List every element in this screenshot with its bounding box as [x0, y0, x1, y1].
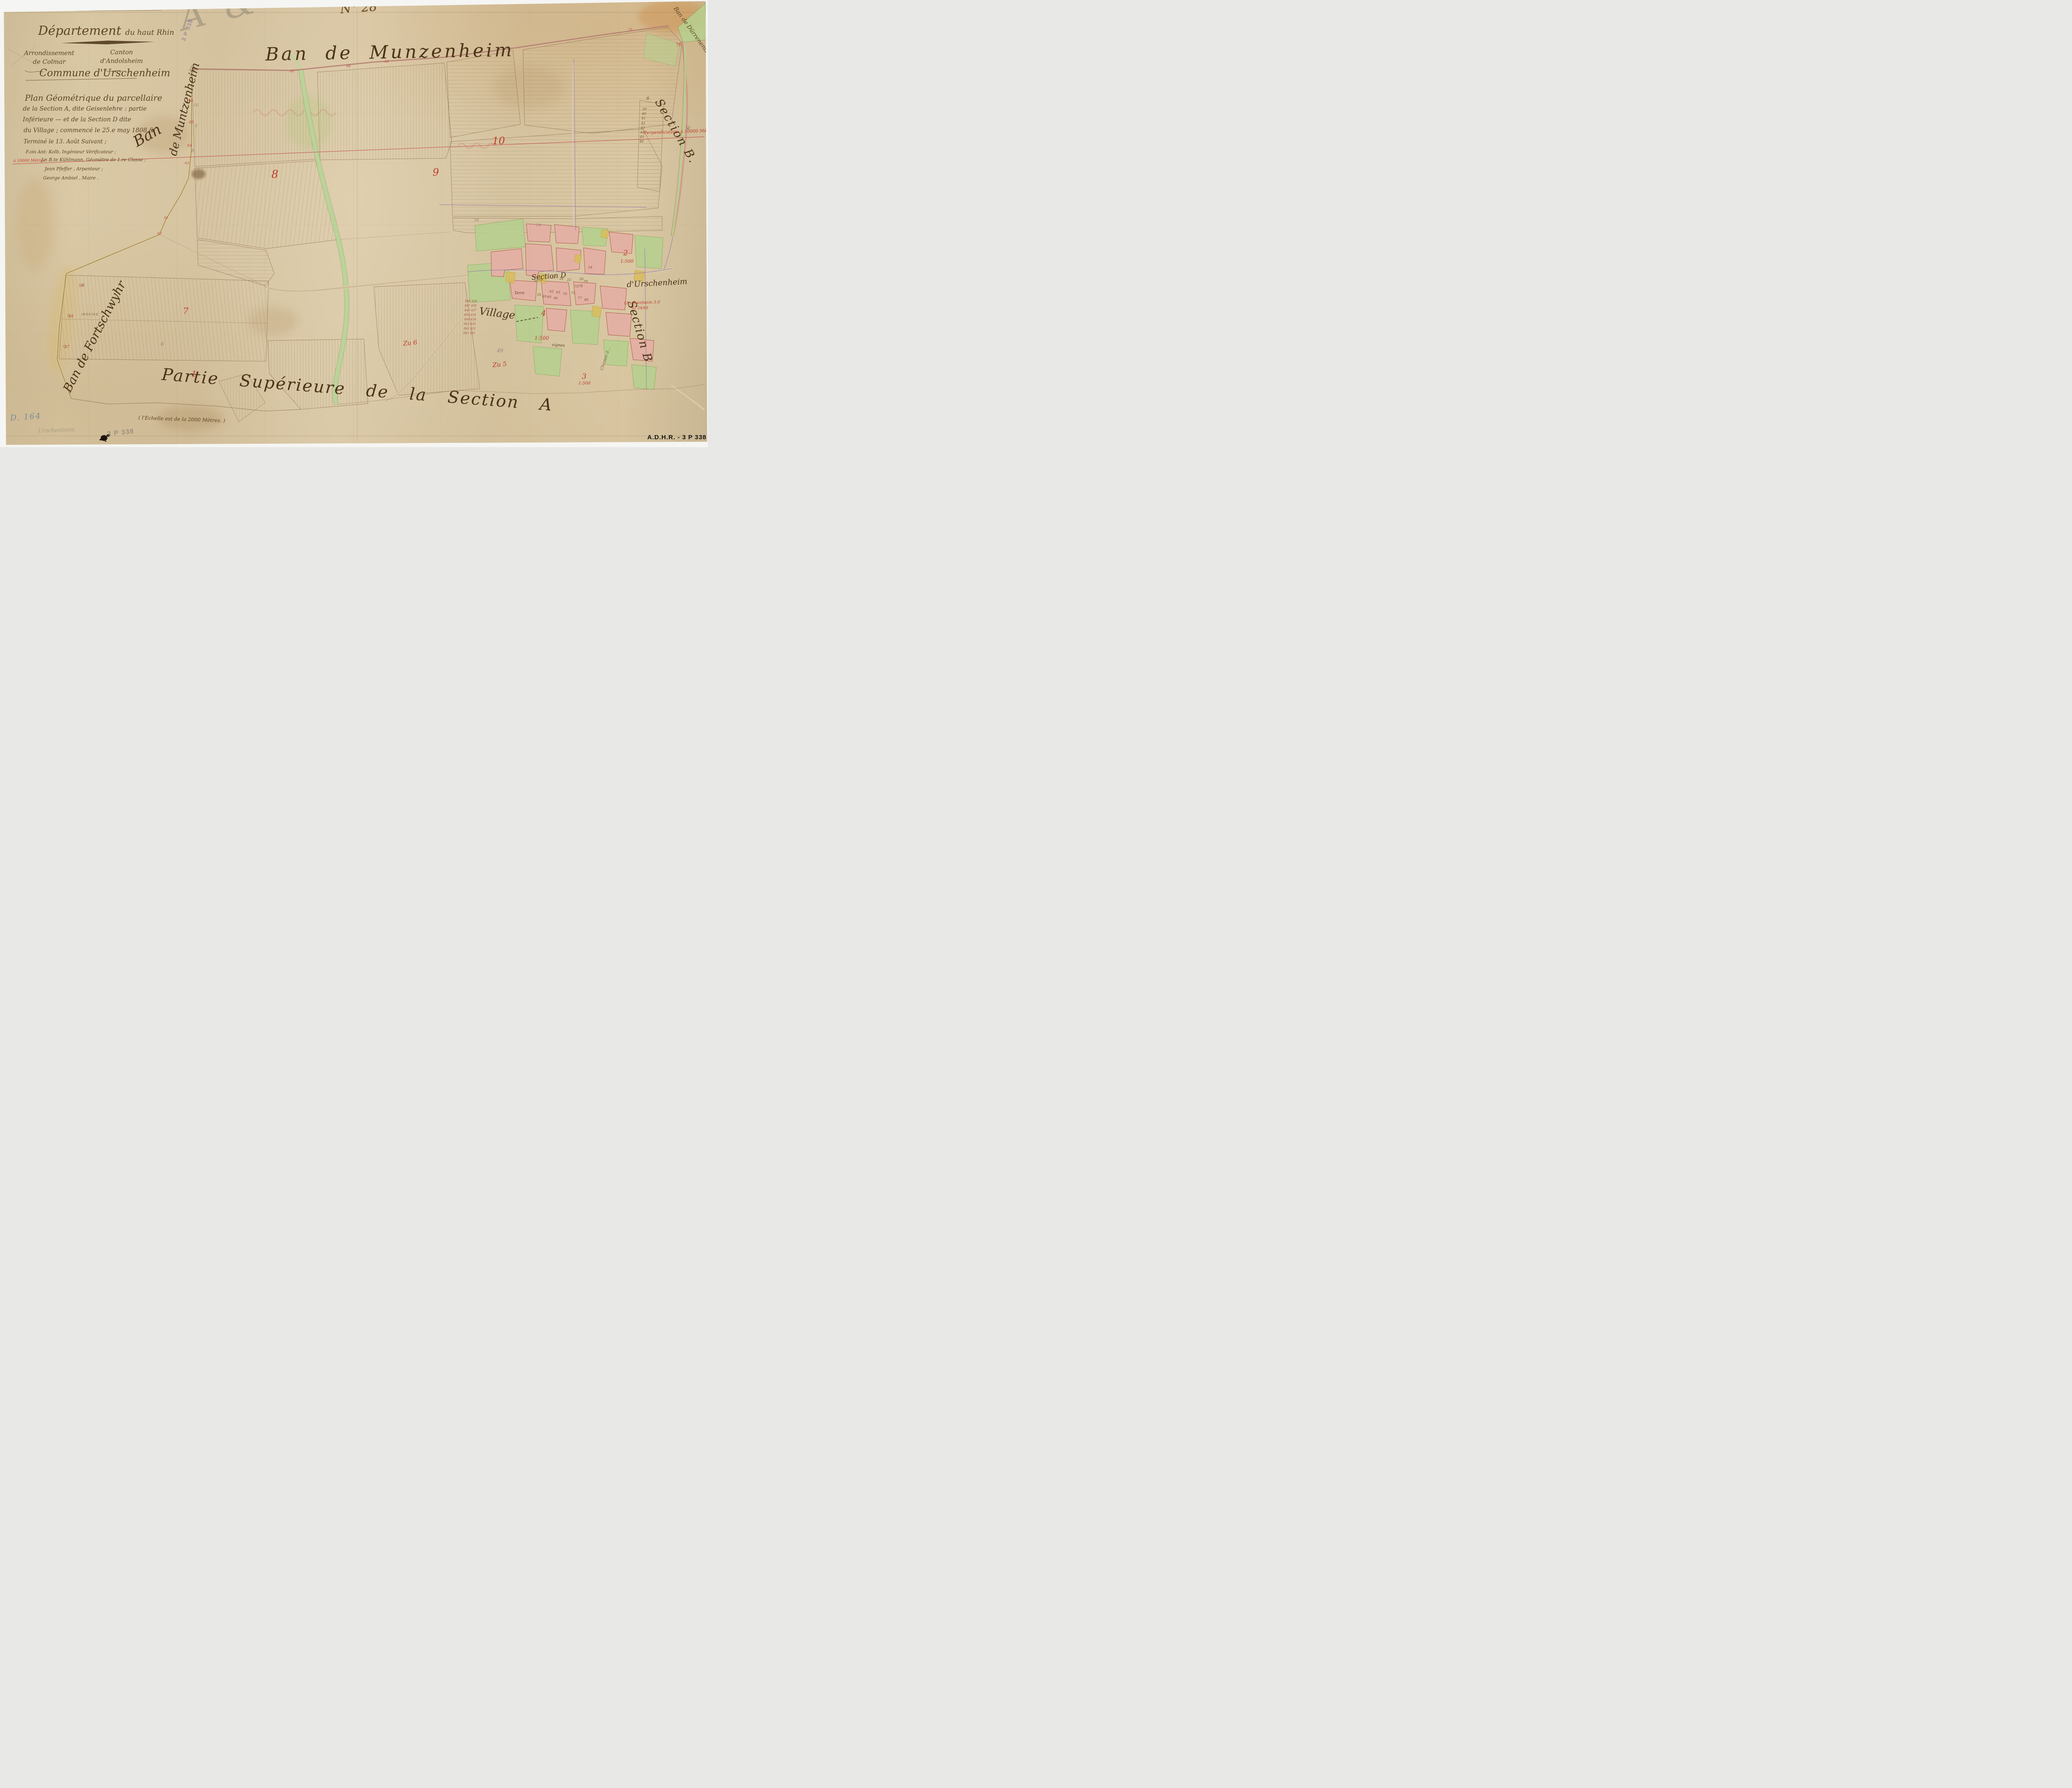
- brown-parcel-numbers-item: 66: [554, 297, 558, 300]
- red-parcel-columns-item: 844 434: [464, 318, 476, 321]
- red-survey-points-item: 62: [290, 70, 294, 73]
- brown-parcel-numbers-item: 39: [642, 108, 646, 111]
- red-survey-points-item: 64: [187, 144, 192, 148]
- red-district-numbers-item: Zu 6: [403, 339, 418, 347]
- red-parcel-columns-item: 843 433: [464, 323, 476, 326]
- brown-parcel-numbers-item: 40: [642, 112, 646, 116]
- red-district-numbers-item: 8: [271, 169, 278, 180]
- brown-parcel-numbers-item: 71: [571, 292, 575, 295]
- red-parcel-columns-item: 842 432: [464, 327, 476, 330]
- brown-parcel-numbers-item: 80: [584, 298, 588, 302]
- brown-parcel-numbers-item: 28: [551, 276, 555, 279]
- pencil-numbers-item: 24: [536, 224, 541, 227]
- brown-parcel-numbers-item: 6: [646, 96, 649, 101]
- scatter-number-layer: 891071Zu 6Zu 541:50021:50031:50076575859…: [0, 0, 708, 447]
- red-district-numbers-item: 7: [183, 307, 189, 315]
- red-survey-points-item: 59: [79, 284, 83, 288]
- brown-parcel-numbers-item: 58: [539, 278, 543, 282]
- brown-parcel-numbers-item: 26: [559, 277, 564, 281]
- brown-parcel-numbers-item: 75: [574, 285, 579, 288]
- brown-parcel-numbers-item: 78: [579, 285, 583, 288]
- red-parcel-columns-item: 846 437: [465, 309, 477, 312]
- red-district-numbers-item: 1: [191, 370, 197, 378]
- brown-parcel-numbers-item: 77: [578, 297, 582, 300]
- pencil-numbers-item: 8: [191, 149, 194, 153]
- pencil-numbers-item: 10: [193, 104, 198, 108]
- red-parcel-columns-item: 841 431: [463, 332, 475, 335]
- scanned-map-photo: Commune d'Urschenheim, Section D & parti…: [0, 0, 708, 447]
- red-survey-points-item: 57: [65, 346, 69, 349]
- map-paper-sheet: Commune d'Urschenheim, Section D & parti…: [0, 0, 708, 447]
- red-district-numbers-item: 1:500: [620, 259, 634, 264]
- red-district-numbers-item: 1:500: [579, 382, 591, 386]
- brown-parcel-numbers-item: 45: [640, 135, 644, 139]
- red-district-numbers-item: 10: [492, 136, 505, 146]
- brown-parcel-numbers-item: 55: [537, 293, 541, 297]
- pencil-numbers-item: 6: [161, 341, 164, 346]
- red-parcel-columns-item: 845 436: [464, 314, 476, 317]
- brown-parcel-numbers-item: 70: [563, 293, 567, 296]
- red-parcel-columns-item: 848 439: [465, 300, 477, 303]
- brown-parcel-numbers-item: 18 8 8 18 8: [81, 313, 98, 316]
- archive-watermark: A.D.H.R. - 3 P 338: [647, 434, 707, 440]
- red-district-numbers-item: 2: [623, 249, 628, 257]
- red-survey-points-item: 63: [185, 162, 189, 165]
- red-survey-points-item: 60: [157, 232, 162, 235]
- red-survey-points-item: 65: [189, 121, 194, 125]
- red-survey-points-item: 75: [628, 28, 632, 31]
- brown-parcel-numbers-item: 20: [579, 278, 583, 281]
- red-survey-points-item: 66: [189, 99, 193, 103]
- red-district-numbers-item: 9: [433, 167, 439, 177]
- brown-parcel-numbers-item: 41: [641, 117, 646, 120]
- brown-parcel-numbers-item: 65: [556, 291, 560, 294]
- pencil-numbers-item: 9: [195, 124, 197, 128]
- red-district-numbers-item: Zu 5: [492, 361, 507, 368]
- red-survey-points-item: 68: [346, 65, 351, 68]
- brown-parcel-numbers-item: 43: [641, 126, 645, 130]
- brown-parcel-numbers-item: 62: [549, 290, 554, 293]
- brown-parcel-numbers-item: 79: [583, 280, 588, 283]
- brown-parcel-numbers-item: 56: [534, 279, 538, 283]
- brown-parcel-numbers-item: 42: [641, 122, 645, 125]
- red-survey-points-item: 61: [164, 216, 168, 220]
- red-parcel-columns-item: 847 438: [465, 305, 477, 307]
- red-survey-points-item: 58: [69, 315, 73, 319]
- red-district-numbers-item: 4: [541, 310, 546, 317]
- brown-parcel-numbers-item: 22: [567, 278, 571, 282]
- brown-parcel-numbers-item: 46: [639, 140, 644, 143]
- pencil-numbers-item: 34: [474, 219, 479, 223]
- red-district-numbers-item: 76: [675, 42, 682, 48]
- red-district-numbers-item: 1:500: [535, 336, 549, 341]
- brown-parcel-numbers-item: 59: [542, 295, 546, 298]
- pencil-numbers-item: 49: [497, 348, 503, 353]
- red-district-numbers-item: 3: [582, 373, 586, 380]
- brown-parcel-numbers-item: 44: [640, 131, 644, 134]
- brown-parcel-numbers-item: 60: [547, 295, 551, 299]
- brown-parcel-numbers-item: 18: [588, 266, 592, 269]
- red-survey-points-item: 69: [385, 60, 389, 63]
